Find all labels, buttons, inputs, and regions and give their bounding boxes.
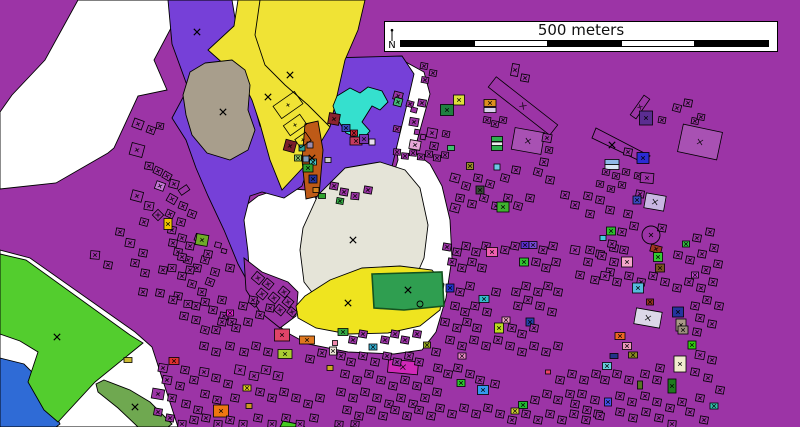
building <box>153 408 162 416</box>
building <box>695 350 705 359</box>
building <box>253 414 262 422</box>
building <box>372 394 381 402</box>
building <box>351 192 360 200</box>
building-footprint <box>327 366 333 371</box>
building <box>570 400 579 408</box>
building <box>565 390 574 398</box>
building <box>450 203 461 213</box>
svg-text:N: N <box>388 40 395 50</box>
building <box>424 376 433 384</box>
building <box>460 308 469 316</box>
building <box>479 296 489 303</box>
building <box>352 376 361 384</box>
building <box>425 151 432 158</box>
building <box>467 258 476 266</box>
building <box>654 253 663 262</box>
building <box>360 135 369 144</box>
building <box>346 358 355 366</box>
building <box>483 404 492 412</box>
building <box>336 388 345 396</box>
building <box>176 218 186 227</box>
building <box>483 116 491 123</box>
building <box>305 355 314 363</box>
building <box>404 352 413 360</box>
building <box>328 113 341 126</box>
building-footprint <box>214 242 221 248</box>
building <box>555 376 564 384</box>
building <box>622 257 633 267</box>
building <box>579 376 588 384</box>
building <box>336 352 345 360</box>
building <box>138 288 147 296</box>
building <box>492 146 503 151</box>
building <box>471 248 480 256</box>
building <box>511 288 520 296</box>
building <box>406 100 414 108</box>
building <box>472 324 481 332</box>
building <box>479 194 489 203</box>
building <box>695 314 704 322</box>
building <box>354 412 363 420</box>
building <box>364 370 373 378</box>
building <box>609 258 618 266</box>
building <box>619 246 628 254</box>
building <box>358 352 367 360</box>
building <box>484 108 496 113</box>
building <box>187 280 197 289</box>
building <box>652 398 661 406</box>
building <box>335 421 343 427</box>
building <box>420 62 428 69</box>
building-footprint <box>492 146 503 151</box>
building <box>330 347 337 355</box>
building <box>164 219 172 230</box>
building <box>327 366 333 371</box>
building <box>660 278 669 286</box>
building <box>640 172 654 183</box>
building <box>553 288 562 296</box>
building <box>520 74 529 82</box>
building <box>181 400 190 408</box>
building <box>538 246 547 254</box>
building <box>261 365 271 374</box>
building <box>212 396 221 404</box>
building <box>409 150 416 157</box>
scalebar-segment <box>694 41 768 46</box>
building <box>487 248 498 257</box>
building <box>665 404 674 412</box>
building <box>211 348 220 356</box>
building <box>409 117 419 126</box>
building <box>623 148 632 156</box>
building <box>531 258 540 266</box>
building <box>442 130 450 137</box>
building <box>615 392 624 400</box>
building <box>622 168 630 175</box>
building <box>596 180 604 187</box>
building <box>210 268 220 277</box>
building <box>412 330 421 338</box>
building <box>499 116 507 123</box>
building <box>184 300 193 308</box>
building <box>590 396 599 404</box>
building <box>455 288 464 296</box>
building <box>255 311 264 319</box>
building <box>569 410 578 418</box>
building <box>673 251 682 259</box>
building <box>570 245 580 254</box>
building <box>303 156 309 162</box>
building <box>454 95 465 105</box>
building <box>491 120 499 127</box>
building <box>678 326 688 334</box>
building-footprint <box>313 188 319 193</box>
building <box>388 382 397 390</box>
building <box>409 140 421 151</box>
building <box>644 193 666 211</box>
building <box>435 404 444 412</box>
building <box>300 336 315 344</box>
building <box>414 406 423 414</box>
building <box>193 406 202 414</box>
building <box>387 359 418 375</box>
building-footprint <box>319 194 326 199</box>
scalebar-segment <box>547 41 621 46</box>
building <box>623 343 632 350</box>
building <box>605 160 619 165</box>
building <box>673 307 684 317</box>
building <box>490 380 499 388</box>
building <box>553 342 562 350</box>
building <box>507 324 516 332</box>
building <box>185 266 194 274</box>
building <box>697 113 705 120</box>
building <box>595 196 604 204</box>
building <box>530 396 539 404</box>
building <box>543 282 552 290</box>
building <box>656 264 665 272</box>
building <box>338 329 348 336</box>
building <box>690 368 699 376</box>
building <box>602 168 610 175</box>
building <box>158 363 168 372</box>
building <box>618 181 626 188</box>
building <box>309 414 318 422</box>
building <box>225 416 234 424</box>
building <box>443 370 452 378</box>
building <box>495 323 504 333</box>
building <box>393 97 403 107</box>
building <box>684 278 693 286</box>
building <box>612 278 621 286</box>
building <box>414 129 420 135</box>
building <box>511 408 519 414</box>
building <box>658 116 666 123</box>
building <box>336 197 344 204</box>
building <box>203 250 212 258</box>
building <box>175 382 184 390</box>
building <box>144 201 154 210</box>
building <box>617 228 626 236</box>
building <box>410 107 417 113</box>
building <box>465 282 474 290</box>
building <box>426 412 435 420</box>
building <box>214 405 229 417</box>
building <box>521 242 529 249</box>
building <box>624 376 633 384</box>
building <box>249 371 259 380</box>
building <box>513 302 522 310</box>
building <box>151 388 165 400</box>
building <box>547 308 556 316</box>
building <box>677 398 686 406</box>
map-canvas[interactable] <box>0 0 800 427</box>
building <box>494 164 500 170</box>
building <box>189 416 198 424</box>
building <box>475 376 484 384</box>
building <box>517 330 526 338</box>
building <box>445 336 454 344</box>
building <box>180 366 189 374</box>
building <box>529 242 537 249</box>
building <box>440 318 449 326</box>
building <box>697 250 706 258</box>
building-footprint <box>333 341 338 346</box>
building <box>469 336 478 344</box>
building <box>165 414 174 422</box>
building <box>545 176 554 184</box>
building <box>633 283 644 293</box>
building <box>647 299 654 305</box>
building <box>90 251 100 260</box>
building <box>581 416 590 424</box>
building <box>299 145 305 151</box>
building <box>248 296 257 304</box>
building <box>714 302 723 310</box>
building <box>612 172 620 179</box>
building <box>603 363 612 370</box>
building <box>169 179 180 189</box>
building <box>500 174 510 183</box>
building <box>239 420 248 427</box>
building <box>539 158 548 166</box>
building <box>570 201 579 209</box>
building <box>507 416 516 424</box>
building <box>342 406 351 414</box>
building <box>695 394 704 402</box>
building <box>227 310 234 316</box>
building-footprint <box>299 145 305 151</box>
building <box>255 388 264 396</box>
building <box>648 272 657 280</box>
building <box>319 194 326 199</box>
building <box>505 342 514 350</box>
building <box>591 370 600 378</box>
building-footprint <box>124 358 132 363</box>
building <box>103 261 112 269</box>
building-footprint <box>546 370 551 374</box>
building <box>471 410 480 418</box>
building-footprint <box>638 381 643 389</box>
building <box>641 408 650 416</box>
building <box>545 410 554 418</box>
building <box>523 296 532 304</box>
building <box>363 186 372 194</box>
building <box>168 239 177 247</box>
building <box>638 381 643 389</box>
building <box>629 222 638 230</box>
building <box>243 385 251 391</box>
building <box>628 414 637 422</box>
building <box>533 416 542 424</box>
building <box>200 298 209 306</box>
building <box>265 304 274 312</box>
building-footprint <box>246 404 252 409</box>
building <box>295 155 302 161</box>
building <box>155 289 164 297</box>
building <box>492 137 503 142</box>
building <box>217 318 226 326</box>
building <box>432 388 441 396</box>
building <box>583 192 592 200</box>
building <box>125 238 135 247</box>
building <box>441 152 448 159</box>
building <box>340 370 349 378</box>
building-footprint <box>492 137 503 142</box>
building <box>629 352 638 358</box>
building <box>709 244 718 252</box>
building <box>605 206 614 214</box>
building <box>545 146 553 153</box>
building-footprint <box>600 236 606 241</box>
building <box>200 390 209 398</box>
building <box>115 228 124 236</box>
building <box>520 258 529 266</box>
building <box>583 258 592 266</box>
building <box>452 248 461 256</box>
building <box>652 376 661 384</box>
building-footprint <box>484 108 496 113</box>
building <box>313 188 319 193</box>
building <box>426 128 437 139</box>
building-footprint <box>448 146 455 151</box>
building <box>221 248 227 253</box>
building <box>156 122 164 129</box>
building <box>450 173 461 183</box>
building <box>600 236 606 241</box>
building <box>683 99 692 107</box>
building <box>251 342 260 350</box>
building <box>707 356 716 364</box>
building <box>185 242 194 250</box>
building <box>351 421 359 427</box>
building <box>624 272 633 280</box>
building <box>414 358 423 366</box>
building <box>467 200 476 208</box>
building <box>296 420 305 427</box>
building <box>279 388 288 396</box>
building <box>511 166 520 174</box>
building <box>461 242 470 250</box>
building <box>511 128 544 155</box>
building <box>402 412 411 420</box>
building <box>448 146 455 151</box>
building <box>140 269 149 277</box>
building-footprint <box>369 139 375 145</box>
building <box>158 266 167 274</box>
building <box>553 396 562 404</box>
building <box>177 253 186 261</box>
building <box>178 420 187 427</box>
building <box>223 380 232 388</box>
building <box>400 336 409 344</box>
building <box>590 276 599 284</box>
building <box>351 130 358 136</box>
building <box>392 358 401 366</box>
building <box>231 324 240 332</box>
building <box>447 410 456 418</box>
building <box>238 302 247 310</box>
building <box>702 296 711 304</box>
building <box>370 358 379 366</box>
building <box>315 394 324 402</box>
building <box>485 180 495 189</box>
building <box>420 394 429 402</box>
building <box>462 318 471 326</box>
building <box>162 375 172 384</box>
building <box>211 374 220 382</box>
building <box>348 394 357 402</box>
building <box>197 288 206 296</box>
map-circle <box>417 301 423 307</box>
building <box>607 240 616 248</box>
building <box>491 288 500 296</box>
building <box>325 158 331 163</box>
building <box>551 258 560 266</box>
building <box>640 111 653 125</box>
building <box>431 348 440 356</box>
building-footprint <box>325 158 331 163</box>
building <box>510 242 519 250</box>
building <box>529 324 538 332</box>
building <box>458 353 466 359</box>
building <box>382 352 391 360</box>
building <box>291 394 300 402</box>
building <box>401 153 408 160</box>
building <box>493 336 502 344</box>
building <box>453 364 462 372</box>
building <box>699 416 708 424</box>
building <box>429 142 438 150</box>
building <box>201 414 210 422</box>
building <box>503 194 512 202</box>
building <box>380 336 389 344</box>
building <box>366 406 375 414</box>
building <box>484 100 496 107</box>
building <box>179 312 188 320</box>
building <box>459 404 468 412</box>
building <box>455 194 464 202</box>
building <box>441 105 454 116</box>
building <box>637 153 649 164</box>
building <box>199 367 209 376</box>
building <box>672 104 682 113</box>
building <box>668 420 677 427</box>
building <box>708 278 717 286</box>
building <box>317 349 326 357</box>
building <box>429 69 437 76</box>
building <box>433 364 442 372</box>
